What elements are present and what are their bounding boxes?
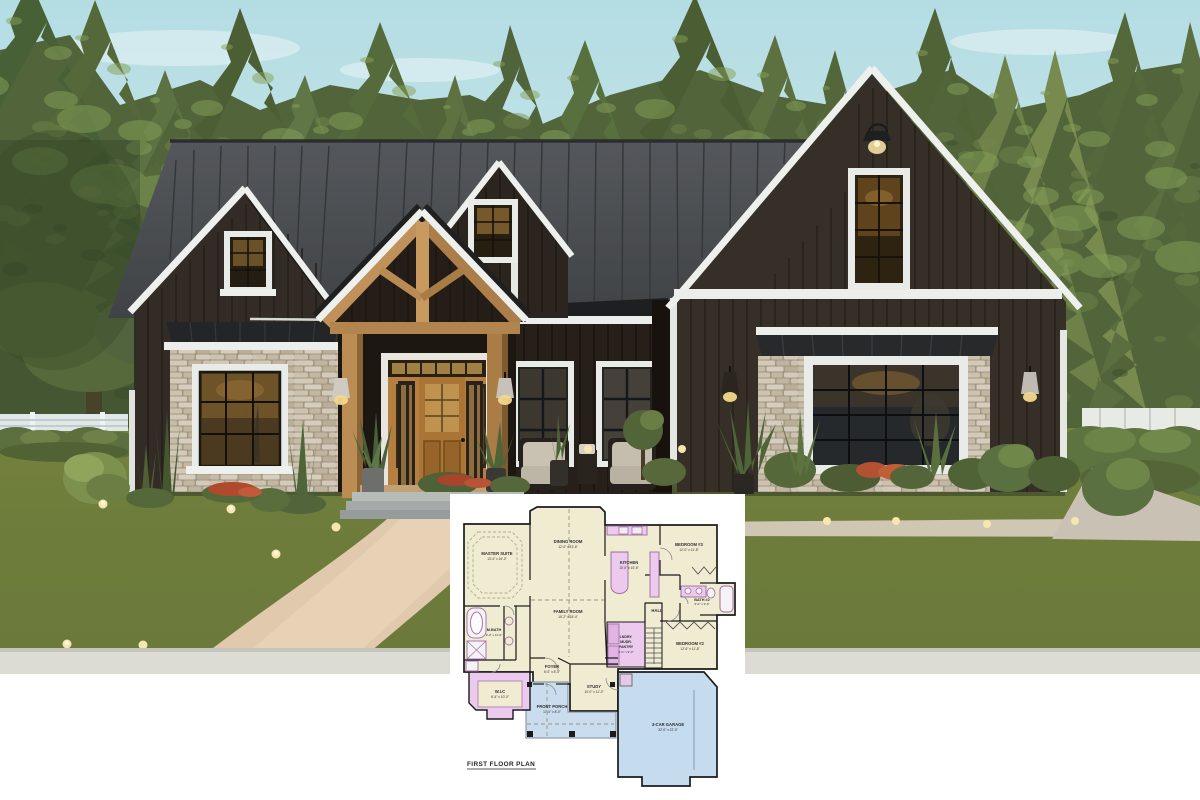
svg-text:W.I.C: W.I.C [495,689,505,694]
svg-text:MUDR.: MUDR. [620,640,632,644]
svg-text:FIRST FLOOR PLAN: FIRST FLOOR PLAN [467,761,535,768]
svg-text:12'-0" x 11'-8": 12'-0" x 11'-8" [679,548,698,552]
svg-text:6'-4" x 10'-0": 6'-4" x 10'-0" [491,695,509,699]
svg-text:3-CAR GARAGE: 3-CAR GARAGE [652,722,685,727]
svg-text:LNDRY.: LNDRY. [620,635,633,639]
svg-text:STUDY: STUDY [587,684,601,689]
svg-text:M.BATH: M.BATH [487,628,502,632]
svg-text:17'-0" x 8'-0": 17'-0" x 8'-0" [543,710,561,714]
svg-text:PANTRY: PANTRY [619,645,634,649]
svg-text:10'-0" x 11'-0": 10'-0" x 11'-0" [584,690,603,694]
svg-text:HALL: HALL [651,608,663,613]
svg-text:BEDROOM #3: BEDROOM #3 [675,542,703,547]
svg-text:6'-0" x 8'-0": 6'-0" x 8'-0" [544,670,560,674]
svg-text:FRONT PORCH: FRONT PORCH [537,704,568,709]
svg-text:FAMILY ROOM: FAMILY ROOM [553,609,583,614]
svg-text:13'-4" x 16'-0": 13'-4" x 16'-0" [487,557,507,561]
svg-text:15'-2" x 18'-4": 15'-2" x 18'-4" [558,615,578,619]
svg-text:MASTER SUITE: MASTER SUITE [481,551,512,556]
svg-text:32'-0" x 22'-0": 32'-0" x 22'-0" [658,728,678,732]
svg-text:10'-0" x 15'-6": 10'-0" x 15'-6" [619,566,639,570]
svg-text:5'-0" x 9'-6": 5'-0" x 9'-6" [694,602,709,606]
svg-text:12'-6" x 11'-8": 12'-6" x 11'-8" [680,647,699,651]
svg-text:KITCHEN: KITCHEN [620,560,639,565]
svg-text:BEDROOM #2: BEDROOM #2 [676,641,704,646]
svg-text:DINING ROOM: DINING ROOM [554,539,583,544]
svg-text:6'-0" x 9'-0": 6'-0" x 9'-0" [618,650,633,654]
svg-text:12'-0" x 13'-6": 12'-0" x 13'-6" [558,545,578,549]
svg-text:FOYER: FOYER [545,664,559,669]
svg-text:9'-0" x 11'-0": 9'-0" x 11'-0" [486,633,503,637]
